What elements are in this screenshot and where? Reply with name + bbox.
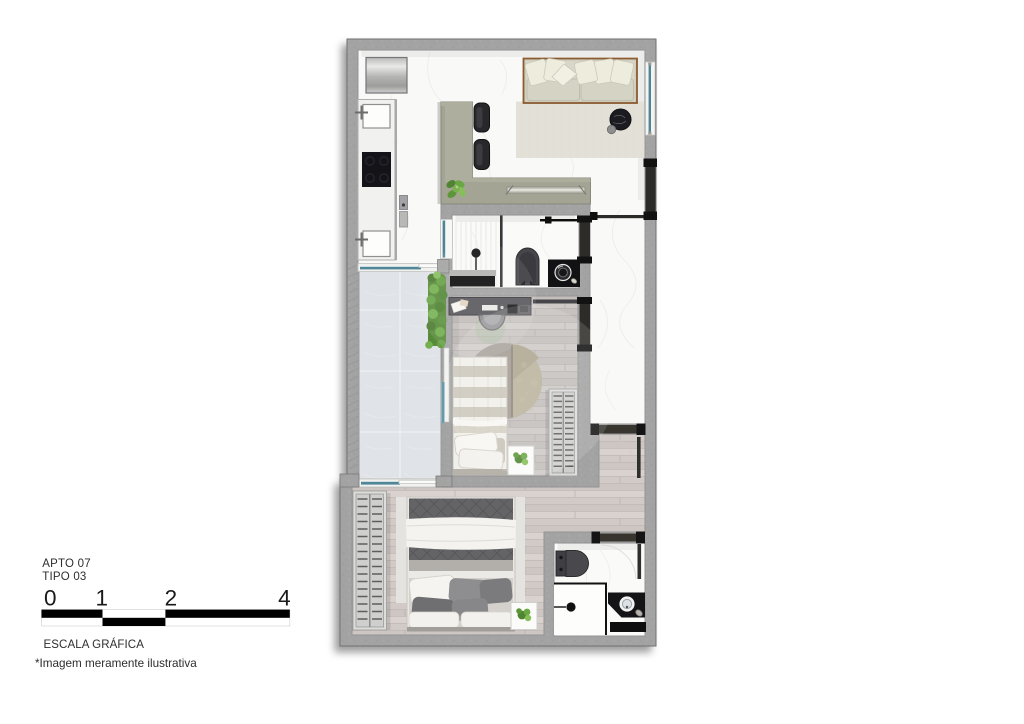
svg-text:ESCALA GRÁFICA: ESCALA GRÁFICA <box>44 638 145 651</box>
svg-text:TIPO 03: TIPO 03 <box>42 571 86 583</box>
svg-text:4: 4 <box>278 586 291 611</box>
svg-text:2: 2 <box>165 586 178 611</box>
svg-text:1: 1 <box>96 586 109 611</box>
svg-text:*Imagem meramente ilustrativa: *Imagem meramente ilustrativa <box>35 657 197 670</box>
svg-text:0: 0 <box>44 586 57 611</box>
svg-text:APTO 07: APTO 07 <box>42 558 91 570</box>
